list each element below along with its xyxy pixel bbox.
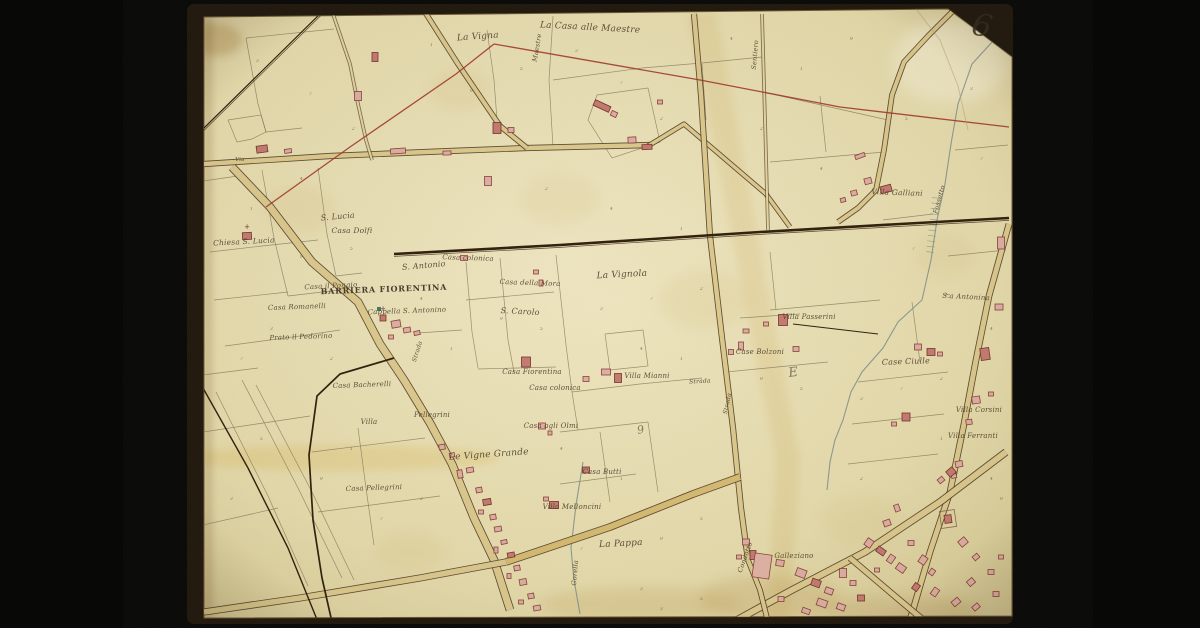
- photo-background: ++37241953724195372419537241953724195372…: [0, 0, 1200, 628]
- map-content: ++37241953724195372419537241953724195372…: [180, 9, 1012, 624]
- cadastral-map: ++37241953724195372419537241953724195372…: [0, 0, 1200, 628]
- vignette: [204, 9, 1012, 618]
